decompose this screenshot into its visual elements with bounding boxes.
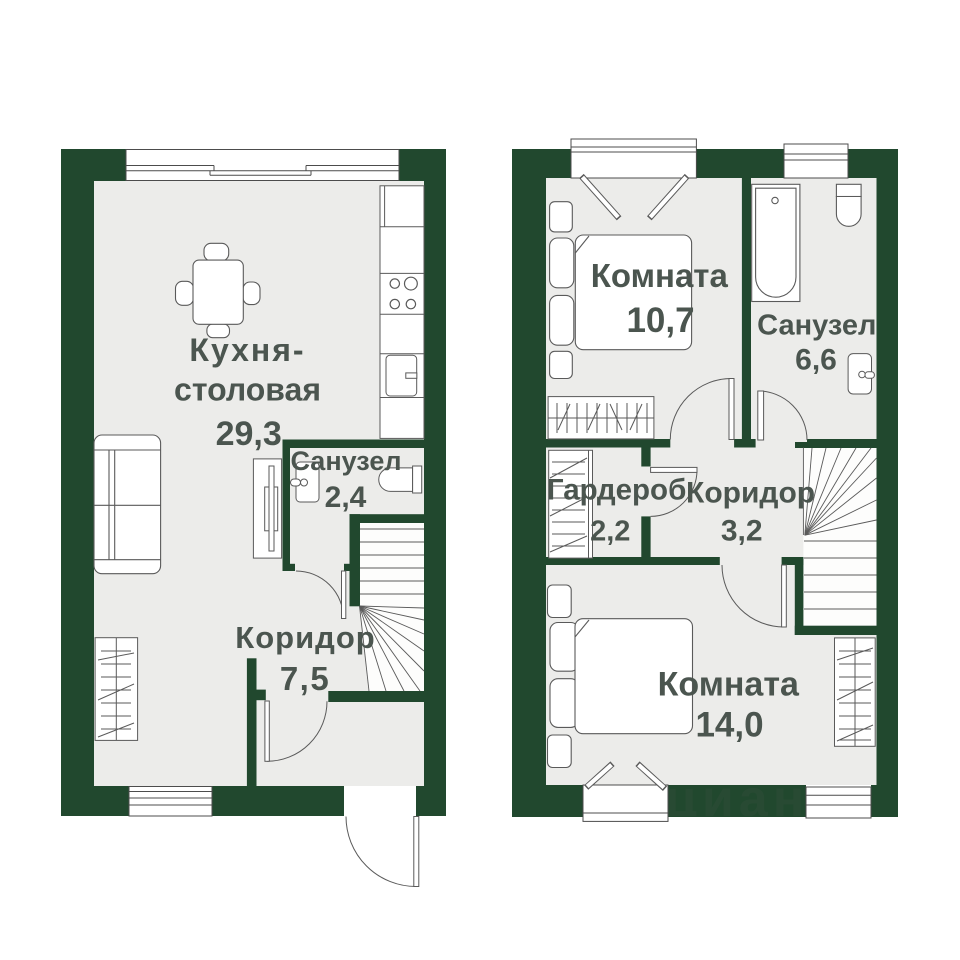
svg-text:3,2: 3,2: [721, 515, 763, 548]
svg-text:Санузел: Санузел: [757, 310, 876, 342]
svg-text:столовая: столовая: [174, 372, 321, 408]
svg-text:Коридор: Коридор: [686, 477, 815, 510]
svg-text:10,7: 10,7: [626, 301, 694, 340]
svg-text:14,0: 14,0: [695, 706, 763, 745]
svg-text:Коридор: Коридор: [235, 620, 375, 655]
svg-text:Санузел: Санузел: [290, 446, 401, 476]
svg-text:Комната: Комната: [591, 257, 729, 294]
svg-text:Гардероб: Гардероб: [547, 474, 686, 507]
svg-text:Кухня-: Кухня-: [189, 332, 305, 368]
svg-text:2,2: 2,2: [590, 516, 630, 548]
svg-text:Комната: Комната: [658, 665, 800, 703]
svg-text:29,3: 29,3: [216, 415, 282, 453]
svg-text:6,6: 6,6: [795, 344, 837, 377]
svg-text:2,4: 2,4: [325, 481, 367, 514]
svg-text:7,5: 7,5: [280, 660, 330, 697]
